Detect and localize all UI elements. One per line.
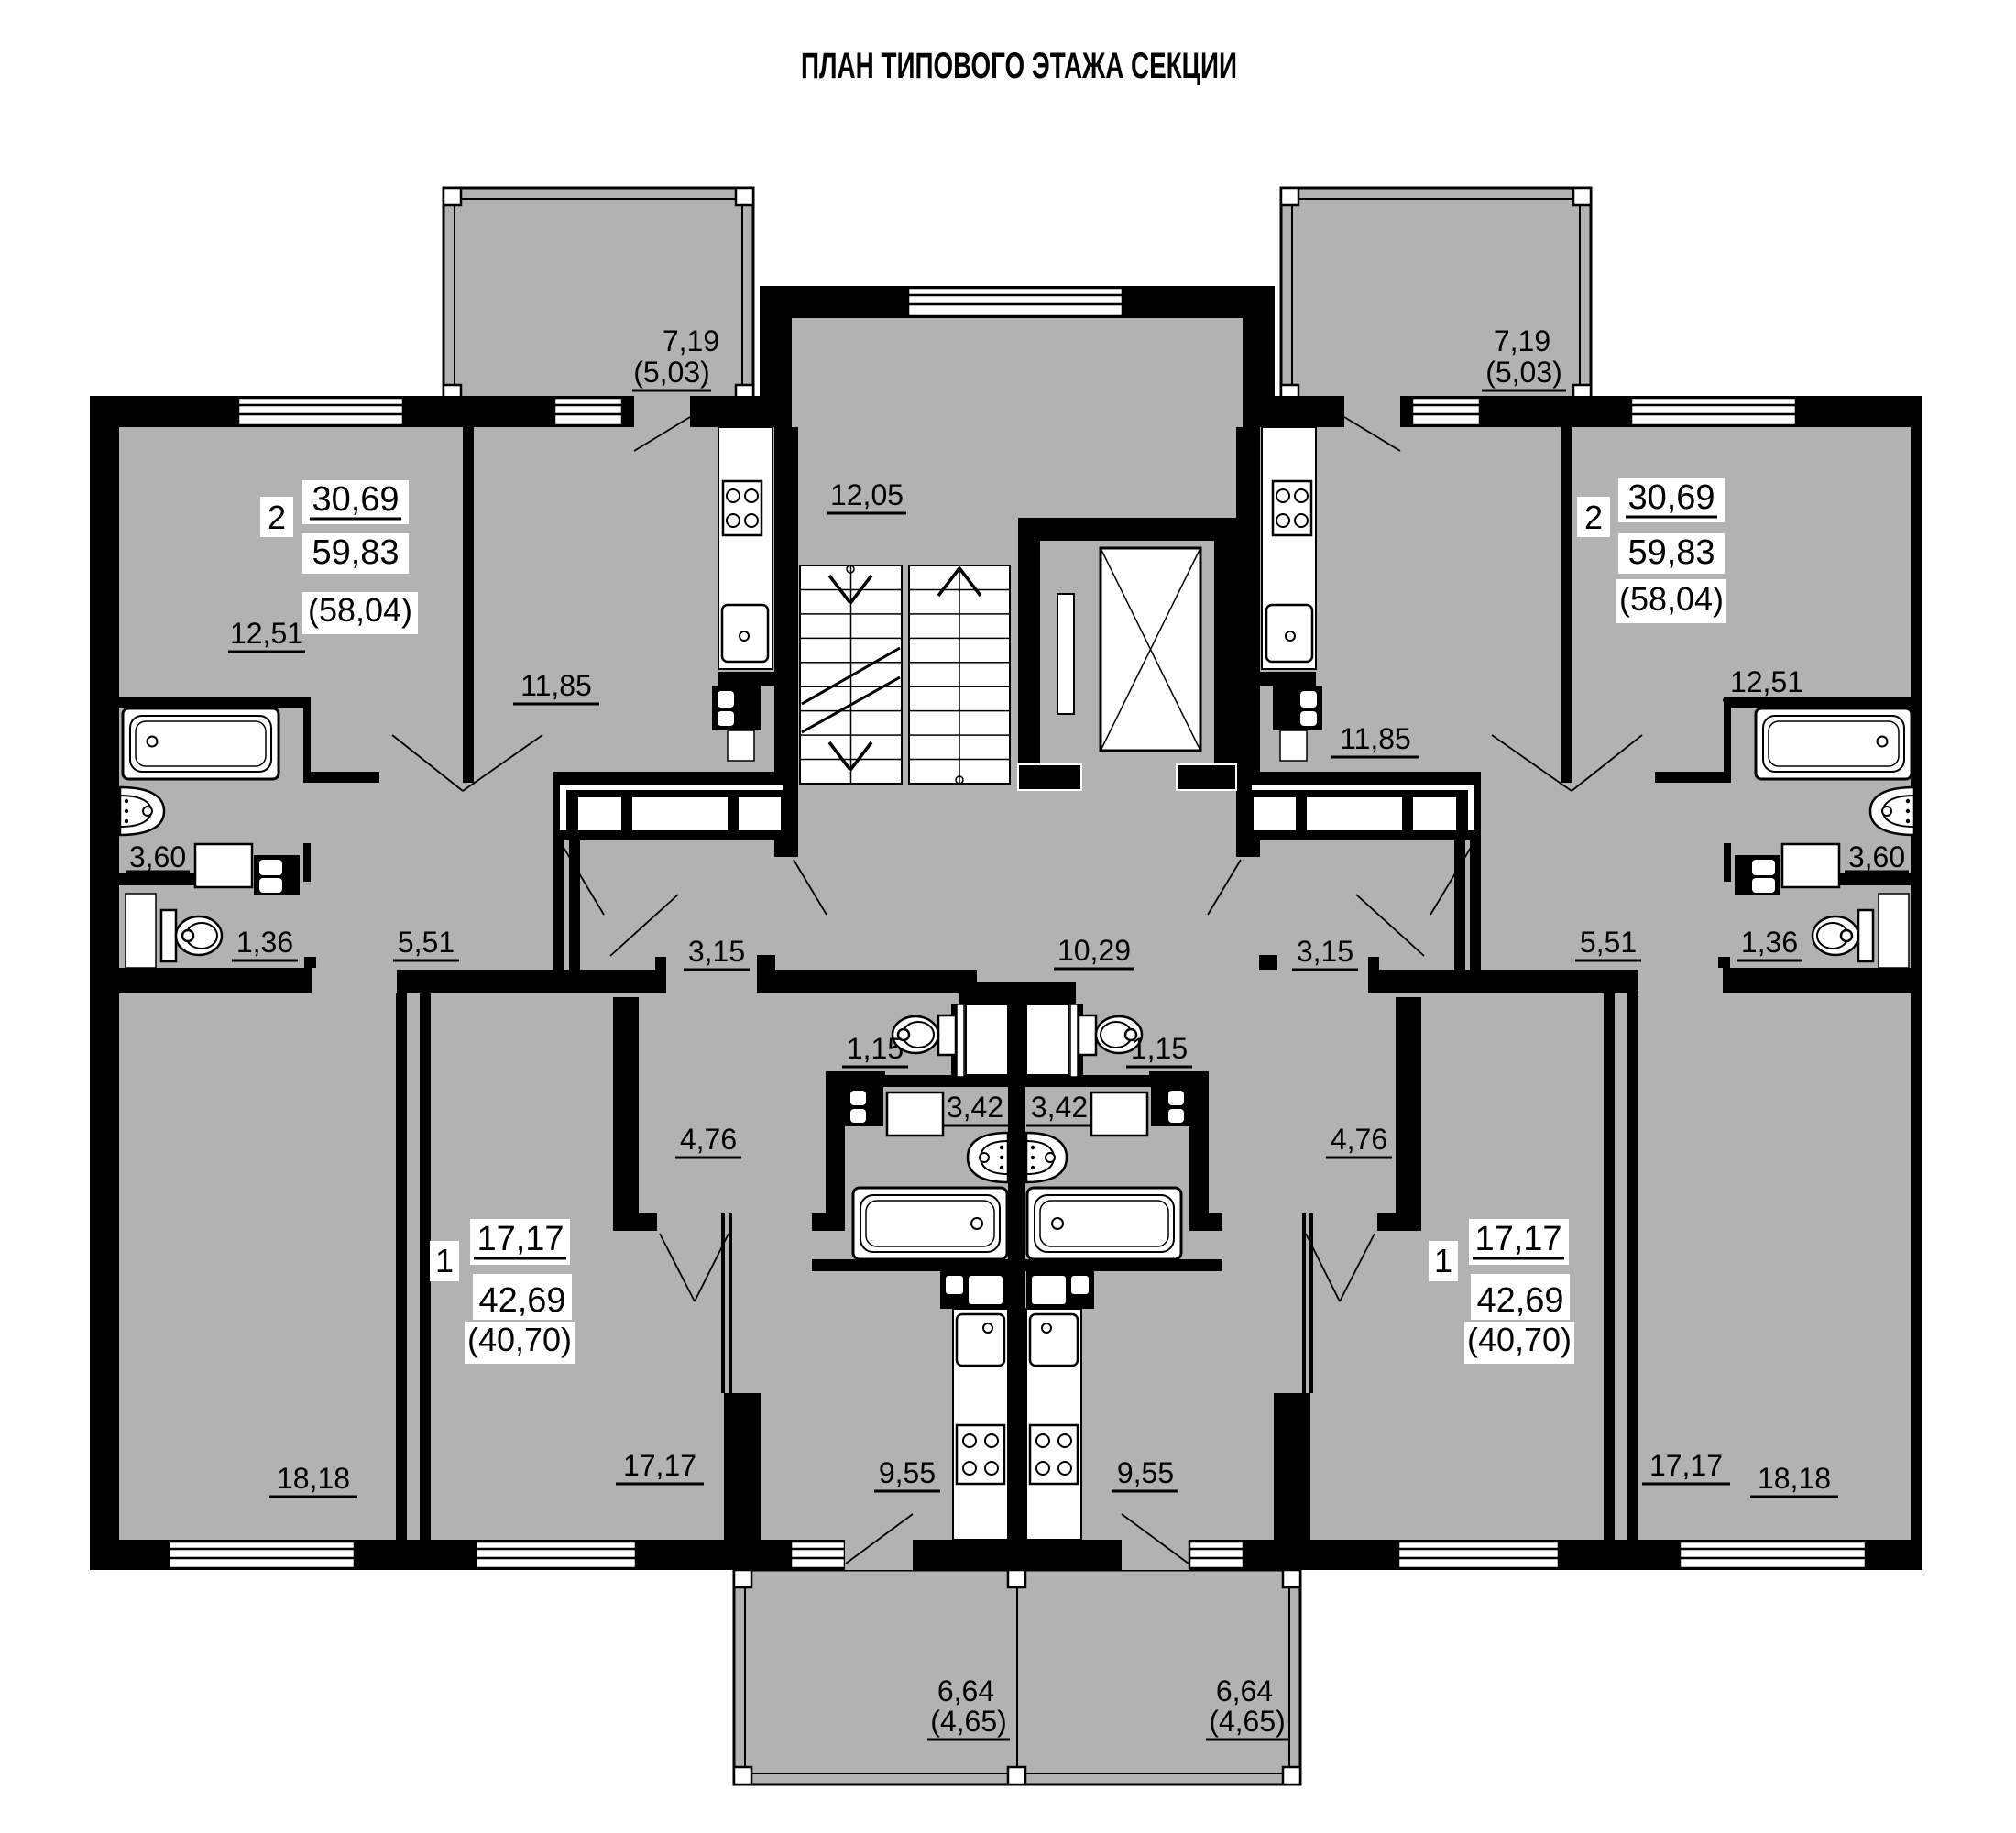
svg-text:3,42: 3,42 [947,1091,1003,1124]
svg-text:7,19: 7,19 [1494,324,1550,357]
svg-text:3,42: 3,42 [1031,1091,1088,1124]
svg-text:11,85: 11,85 [1340,722,1411,755]
svg-text:6,64: 6,64 [937,1674,994,1707]
svg-text:6,64: 6,64 [1216,1674,1273,1707]
svg-text:1: 1 [435,1242,454,1279]
svg-text:42,69: 42,69 [1476,1281,1563,1320]
svg-text:17,17: 17,17 [1474,1220,1561,1258]
svg-text:9,55: 9,55 [879,1456,936,1489]
svg-text:1,15: 1,15 [847,1032,904,1065]
svg-text:18,18: 18,18 [1758,1462,1831,1495]
svg-text:(5,03): (5,03) [633,356,710,389]
svg-text:7,19: 7,19 [663,324,719,357]
svg-text:9,55: 9,55 [1117,1456,1174,1489]
svg-text:3,15: 3,15 [688,935,745,968]
svg-text:3,15: 3,15 [1297,935,1353,968]
svg-text:17,17: 17,17 [623,1449,696,1482]
svg-text:(58,04): (58,04) [1619,580,1724,618]
svg-text:4,76: 4,76 [1331,1123,1387,1156]
svg-text:5,51: 5,51 [1580,926,1637,959]
svg-text:(40,70): (40,70) [1467,1321,1572,1358]
svg-text:1,36: 1,36 [236,926,293,959]
svg-text:1: 1 [1434,1242,1452,1279]
svg-text:(40,70): (40,70) [467,1321,572,1358]
svg-text:1,15: 1,15 [1131,1032,1188,1065]
svg-text:17,17: 17,17 [477,1220,564,1258]
svg-text:12,05: 12,05 [830,478,904,511]
svg-text:(5,03): (5,03) [1485,356,1562,389]
svg-text:12,51: 12,51 [1730,665,1803,698]
svg-text:3,60: 3,60 [1848,840,1905,873]
svg-text:59,83: 59,83 [1627,533,1715,572]
svg-text:59,83: 59,83 [312,533,399,572]
svg-text:3,60: 3,60 [129,840,186,873]
svg-text:18,18: 18,18 [277,1462,350,1495]
svg-text:30,69: 30,69 [1627,478,1715,517]
svg-text:4,76: 4,76 [680,1123,737,1156]
svg-text:5,51: 5,51 [398,926,455,959]
svg-text:42,69: 42,69 [478,1281,565,1320]
svg-text:(4,65): (4,65) [1209,1705,1286,1738]
svg-text:(4,65): (4,65) [930,1705,1007,1738]
svg-text:ПЛАН ТИПОВОГО ЭТАЖА СЕКЦИИ: ПЛАН ТИПОВОГО ЭТАЖА СЕКЦИИ [801,46,1237,86]
svg-text:10,29: 10,29 [1057,934,1131,967]
svg-text:1,36: 1,36 [1741,926,1798,959]
svg-text:2: 2 [1584,499,1603,536]
svg-text:12,51: 12,51 [230,617,303,650]
svg-text:2: 2 [268,499,286,536]
svg-text:30,69: 30,69 [312,480,399,519]
svg-text:(58,04): (58,04) [308,591,412,629]
svg-text:17,17: 17,17 [1649,1449,1723,1482]
svg-text:11,85: 11,85 [520,669,592,702]
